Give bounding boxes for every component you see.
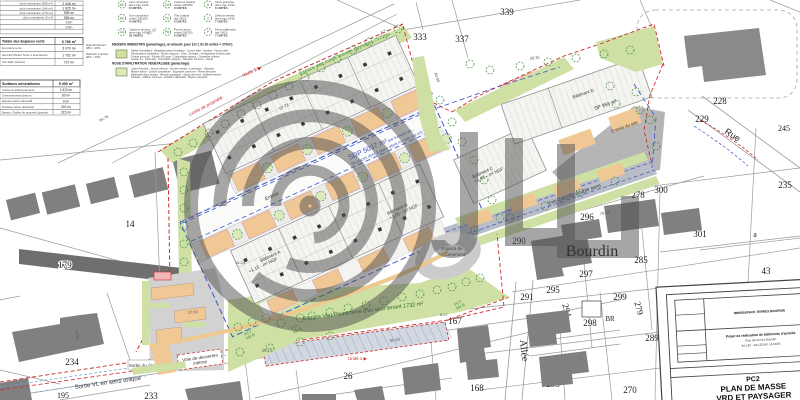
svg-text:936 m²: 936 m² [64, 16, 75, 20]
svg-text:BR: BR [605, 315, 615, 323]
svg-text:233: 233 [144, 391, 158, 400]
svg-text:AC: AC [120, 16, 125, 20]
svg-text:337: 337 [455, 34, 469, 44]
svg-text:26: 26 [344, 371, 354, 381]
svg-text:Sur dalle (toiture): Sur dalle (toiture) [2, 60, 25, 64]
svg-text:60 m²: 60 m² [62, 94, 70, 98]
svg-text:168: 168 [470, 383, 484, 393]
svg-text:P: P [207, 30, 209, 34]
svg-text:0 m²: 0 m² [63, 99, 69, 103]
svg-text:MASSIFS ARBUSTIFS (panachage),: MASSIFS ARBUSTIFS (panachage), un arbust… [112, 43, 232, 47]
svg-text:298: 298 [583, 318, 597, 328]
svg-text:235: 235 [778, 180, 792, 190]
svg-text:935 m²: 935 m² [64, 11, 75, 15]
svg-text:300: 300 [654, 185, 668, 195]
svg-text:339: 339 [500, 7, 514, 17]
svg-text:297: 297 [579, 269, 593, 279]
svg-text:En pleine terre: En pleine terre [2, 46, 22, 50]
svg-text:Totale des Espaces verts: Totale des Espaces verts [2, 40, 45, 44]
svg-text:315 m²: 315 m² [61, 111, 71, 115]
svg-text:5 400 m²: 5 400 m² [59, 82, 74, 86]
svg-text:167: 167 [448, 316, 462, 326]
svg-text:43: 43 [762, 266, 772, 276]
svg-text:333: 333 [413, 32, 427, 42]
svg-text:AC: AC [120, 3, 125, 7]
svg-text:1 925 m²: 1 925 m² [62, 7, 76, 11]
svg-text:289: 289 [645, 333, 659, 343]
svg-text:16.24: 16.24 [235, 260, 246, 265]
svg-text:dont mezzanine (246 m²): dont mezzanine (246 m²) [20, 6, 53, 10]
svg-text:dont mezzanine (360 m²): dont mezzanine (360 m²) [20, 2, 53, 6]
svg-text:4 313 m²: 4 313 m² [60, 88, 73, 92]
svg-text:a: a [753, 230, 757, 239]
svg-text:228: 228 [713, 96, 727, 106]
svg-text:240 m²: 240 m² [61, 105, 71, 109]
svg-text:Bassin / Dalles de propreté (g: Bassin / Dalles de propreté (gravier) [2, 110, 48, 114]
svg-text:dont mezzanine (170 m²): dont mezzanine (170 m²) [20, 11, 53, 15]
svg-text:Allée: Allée [517, 339, 530, 362]
svg-text:195: 195 [57, 391, 69, 400]
svg-text:234: 234 [65, 357, 79, 367]
svg-text:229: 229 [695, 114, 709, 124]
svg-text:179: 179 [58, 260, 72, 270]
svg-text:2 446 m²: 2 446 m² [62, 2, 76, 6]
svg-text:Voiries et stationnements: Voiries et stationnements [2, 88, 35, 92]
svg-text:Terrasse béton désactivé: Terrasse béton désactivé [2, 105, 35, 109]
svg-text:727 m²: 727 m² [64, 60, 75, 64]
svg-text:0 m²: 0 m² [66, 21, 74, 25]
svg-text:3 786 m²: 3 786 m² [62, 40, 77, 44]
svg-text:245: 245 [778, 124, 790, 133]
svg-text:Cheminements (béton): Cheminements (béton) [2, 94, 31, 98]
svg-text:0 m²: 0 m² [66, 25, 74, 29]
svg-text:dont EV Pleine Terre 1 seul te: dont EV Pleine Terre 1 seul tenant [2, 53, 48, 57]
svg-text:291: 291 [520, 292, 534, 302]
svg-text:TC: TC [165, 16, 170, 20]
svg-text:3 079 m²: 3 079 m² [62, 46, 76, 50]
svg-text:1 752 m²: 1 752 m² [62, 53, 76, 57]
svg-text:8.17: 8.17 [440, 312, 449, 317]
svg-text:dont mezzanine (0 m²): dont mezzanine (0 m²) [23, 16, 53, 20]
svg-text:299: 299 [613, 292, 627, 302]
svg-text:Unité 1 ▶: Unité 1 ▶ [348, 356, 368, 361]
svg-text:Z: Z [207, 16, 209, 20]
svg-text:Surfaces minéralisées: Surfaces minéralisées [2, 82, 40, 86]
svg-text:NOUE D'INFILTRATION VÉGÉTALISÉ: NOUE D'INFILTRATION VÉGÉTALISÉE (panacha… [112, 61, 189, 66]
svg-text:270: 270 [623, 385, 637, 395]
svg-text:Espace piéton décoratif: Espace piéton décoratif [2, 99, 32, 103]
svg-text:295: 295 [546, 285, 560, 295]
svg-text:14: 14 [126, 219, 136, 229]
